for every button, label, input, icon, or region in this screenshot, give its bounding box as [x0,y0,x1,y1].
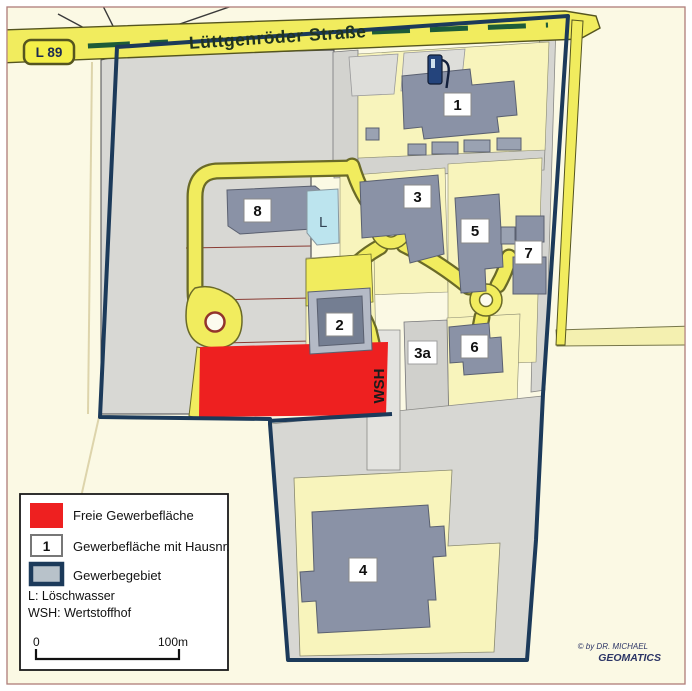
route-sign: L 89 [24,40,74,64]
small-parcel-a [349,54,398,96]
label-5: 5 [461,219,489,243]
label-7: 7 [515,241,542,264]
building-7a [516,216,544,242]
svg-text:8: 8 [253,203,261,220]
label-8: 8 [244,199,271,222]
label-3: 3 [404,185,431,208]
legend-label-district: Gewerbegebiet [73,568,162,583]
svg-text:4: 4 [359,562,368,579]
legend-note-l: L: Löschwasser [28,589,115,603]
svg-text:7: 7 [524,245,532,262]
scale-start-label: 0 [33,635,40,649]
free-area-red [199,342,388,417]
svg-text:1: 1 [453,97,461,114]
wertstoffhof-label: WSH [371,369,388,404]
label-1: 1 [444,93,471,116]
label-2: 2 [326,313,353,336]
cul-de-sac-island [206,313,225,332]
svg-text:3a: 3a [414,345,431,362]
svg-text:2: 2 [335,317,343,334]
east-road [556,326,692,346]
legend-swatch-free-area [30,503,63,528]
building-7c [501,227,515,244]
label-3a: 3a [408,341,437,364]
legend: Freie Gewerbefläche 1 Gewerbefläche mit … [20,494,230,670]
legend-swatch-district [31,564,62,584]
label-6: 6 [461,335,488,358]
legend-label-numbered: Gewerbefläche mit Hausnr. [73,539,230,554]
svg-text:5: 5 [471,223,479,240]
credit-line2: GEOMATICS [598,652,661,664]
label-4: 4 [349,558,377,582]
roundabout-2-island [480,294,493,307]
credit-line1: © by DR. MICHAEL [578,642,648,651]
svg-text:3: 3 [413,189,421,206]
scale-end-label: 100m [158,635,188,649]
map-canvas: L WSH 1 8 3 5 7 [0,0,692,691]
legend-note-wsh: WSH: Wertstoffhof [28,606,132,620]
legend-swatch-number: 1 [43,539,51,554]
svg-text:L 89: L 89 [36,45,63,60]
legend-label-free-area: Freie Gewerbefläche [73,508,194,523]
svg-text:6: 6 [470,339,478,356]
site-plan-map: L WSH 1 8 3 5 7 [0,0,692,691]
loeschwasser-label: L [319,214,327,231]
